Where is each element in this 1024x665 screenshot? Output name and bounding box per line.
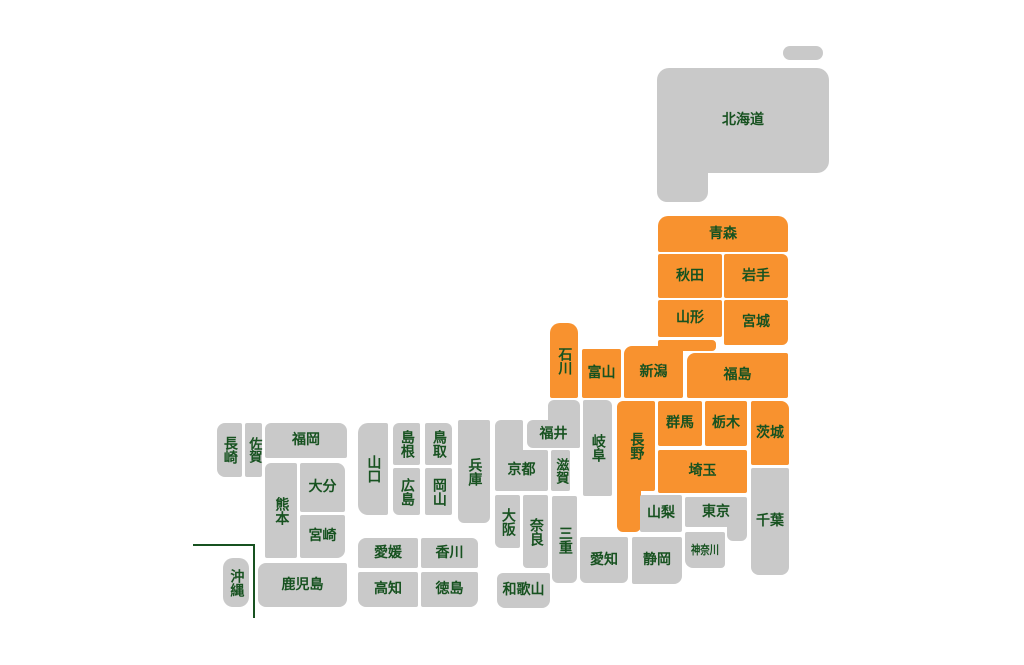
prefecture-yamaguchi-block[interactable] — [358, 423, 388, 515]
okinawa-divider-horizontal — [193, 544, 255, 546]
prefecture-osaka-block[interactable] — [495, 495, 520, 548]
japan-prefecture-map-page: 北海道青森秋田岩手山形宮城福島新潟富山石川福井長野群馬栃木茨城埼玉千葉東京神奈川… — [0, 0, 1024, 665]
prefecture-nagasaki-block[interactable] — [217, 423, 242, 477]
prefecture-gifu-block[interactable] — [583, 400, 612, 496]
okinawa-divider-vertical — [253, 544, 255, 618]
prefecture-hiroshima-block[interactable] — [393, 468, 420, 515]
prefecture-nara-block[interactable] — [523, 495, 548, 568]
prefecture-kagawa-block[interactable] — [421, 538, 478, 568]
prefecture-shimane-block[interactable] — [393, 423, 420, 465]
prefecture-oita-block[interactable] — [300, 463, 345, 512]
prefecture-fukui-block[interactable] — [527, 420, 580, 448]
prefecture-aomori-block[interactable] — [658, 216, 788, 252]
prefecture-wakayama-block[interactable] — [497, 573, 550, 608]
prefecture-okinawa-block[interactable] — [223, 558, 249, 607]
prefecture-hyogo-block[interactable] — [458, 420, 490, 523]
prefecture-miyagi-block[interactable] — [724, 300, 788, 345]
prefecture-kochi-block[interactable] — [358, 572, 418, 607]
prefecture-tokyo-block[interactable] — [727, 522, 747, 541]
prefecture-miyazaki-block[interactable] — [300, 515, 345, 558]
prefecture-niigata-block[interactable] — [658, 340, 716, 351]
prefecture-kyoto-block[interactable] — [495, 450, 548, 491]
prefecture-saitama-block[interactable] — [658, 450, 747, 493]
prefecture-nagano-block[interactable] — [617, 480, 641, 532]
prefecture-chiba-block[interactable] — [751, 468, 789, 575]
prefecture-hokkaido-block[interactable] — [783, 46, 823, 60]
prefecture-kumamoto-block[interactable] — [265, 463, 297, 558]
prefecture-yamanashi-block[interactable] — [640, 495, 682, 532]
prefecture-ibaraki-block[interactable] — [751, 401, 789, 465]
prefecture-niigata-block[interactable] — [624, 346, 683, 398]
prefecture-gunma-block[interactable] — [658, 401, 702, 446]
prefecture-yamagata-block[interactable] — [658, 300, 722, 337]
prefecture-shiga-block[interactable] — [551, 450, 570, 491]
prefecture-tokushima-block[interactable] — [421, 572, 478, 607]
prefecture-ehime-block[interactable] — [358, 538, 418, 568]
prefecture-tottori-block[interactable] — [425, 423, 452, 465]
prefecture-hokkaido-block[interactable] — [657, 68, 829, 173]
prefecture-akita-block[interactable] — [658, 254, 722, 298]
prefecture-kanagawa-block[interactable] — [685, 532, 725, 568]
prefecture-saga-block[interactable] — [245, 423, 262, 477]
prefecture-fukushima-block[interactable] — [687, 353, 788, 398]
prefecture-iwate-block[interactable] — [724, 254, 788, 298]
prefecture-ishikawa-block[interactable] — [550, 323, 578, 398]
prefecture-toyama-block[interactable] — [582, 349, 621, 398]
prefecture-aichi-block[interactable] — [580, 537, 628, 583]
prefecture-shizuoka-block[interactable] — [632, 537, 682, 584]
prefecture-nagano-block[interactable] — [617, 401, 655, 491]
japan-map: 北海道青森秋田岩手山形宮城福島新潟富山石川福井長野群馬栃木茨城埼玉千葉東京神奈川… — [0, 0, 1024, 665]
prefecture-okayama-block[interactable] — [425, 468, 452, 515]
prefecture-hokkaido-block[interactable] — [657, 160, 708, 202]
prefecture-tochigi-block[interactable] — [705, 401, 747, 446]
prefecture-kagoshima-block[interactable] — [258, 563, 347, 607]
prefecture-mie-block[interactable] — [552, 496, 577, 583]
prefecture-fukuoka-block[interactable] — [265, 423, 347, 458]
